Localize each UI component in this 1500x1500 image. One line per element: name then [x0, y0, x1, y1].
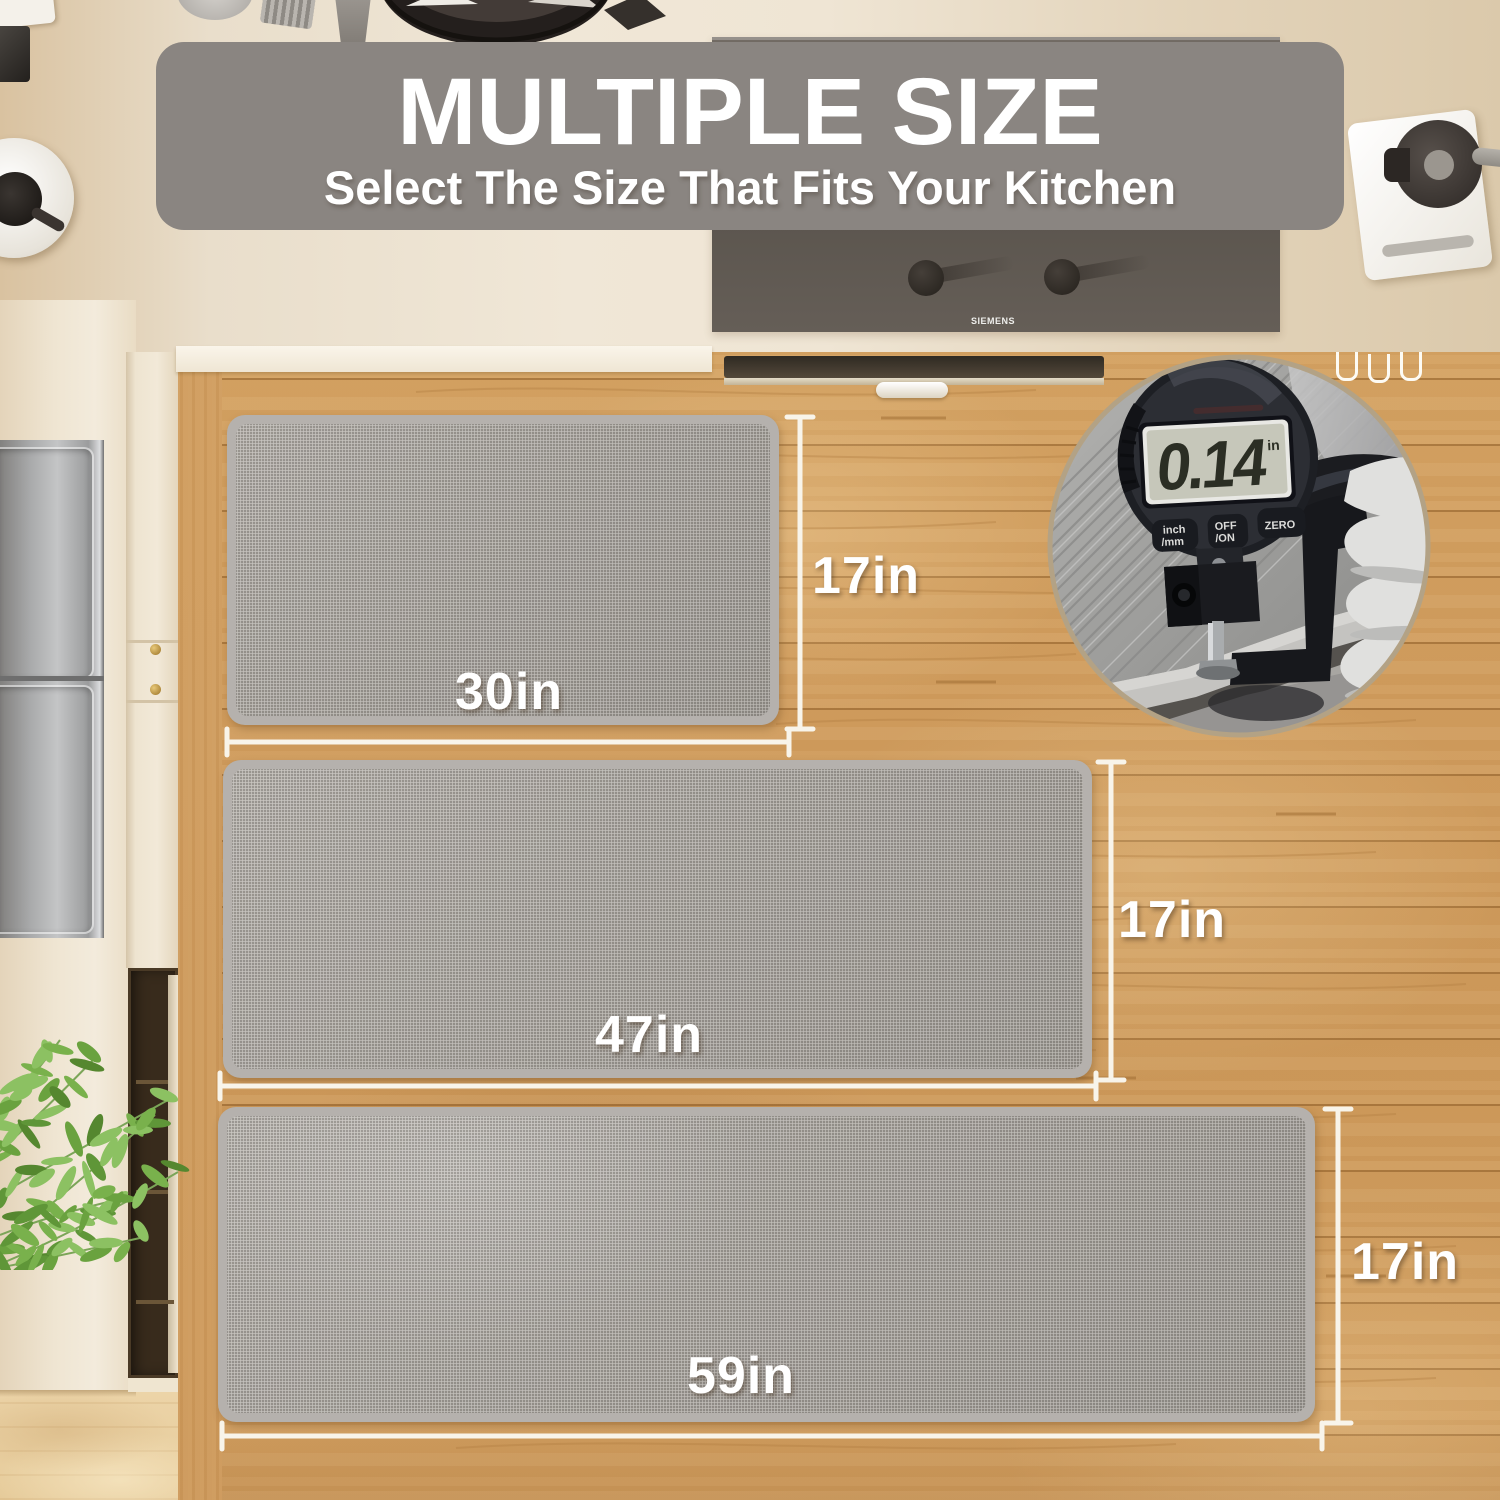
svg-text:ZERO: ZERO: [1264, 519, 1296, 533]
svg-text:/ON: /ON: [1215, 532, 1235, 545]
svg-text:in: in: [1267, 437, 1280, 454]
svg-text:0.14: 0.14: [1154, 424, 1271, 504]
svg-text:OFF: OFF: [1214, 520, 1237, 533]
svg-text:/mm: /mm: [1161, 536, 1184, 549]
